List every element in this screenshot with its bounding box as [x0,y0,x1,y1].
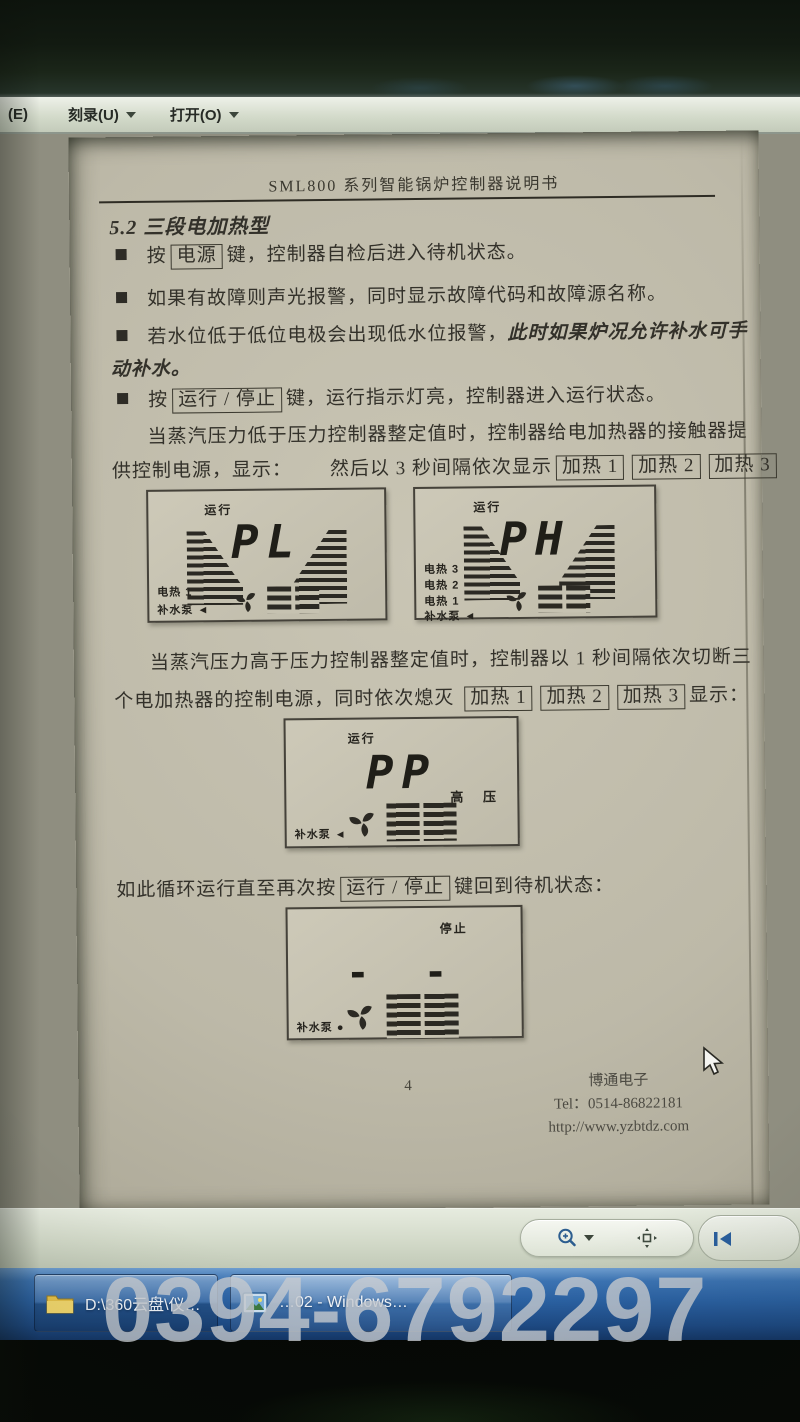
para1-line2: 供控制电源，显示：然后以 3 秒间隔依次显示加热 1加热 2加热 3 [112,449,781,485]
pump-indicator: 补水泵 ◄ [424,607,476,624]
taskbar-button-folder-label: D:\360云盘\仪… [85,1291,201,1315]
viewer-canvas: SML800 系列智能锅炉控制器说明书 5.2 三段电加热型 按电源键，控制器自… [0,134,800,1208]
water-level-gauge-icon [538,585,590,613]
zoom-toolbar [520,1219,694,1257]
pump-indicator: 补水泵 ◄ [295,826,347,843]
monitor-photo: (E) 刻录(U) 打开(O) SML800 系列智能锅炉控制器说明书 5.2 … [0,0,800,1422]
bullet-power: 按电源键，控制器自检后进入待机状态。 [115,237,526,270]
para1-line2a: 供控制电源，显示： [112,459,292,482]
water-level-gauge-icon [386,803,456,842]
heater2-indicator: 电热 2 [424,577,459,593]
lcd-run-label: 运行 [348,729,376,746]
monitor-bottom-bezel [0,1340,800,1422]
bullet-square-icon [116,292,127,303]
bullet-runstop: 按运行 / 停止键，运行指示灯亮，控制器进入运行状态。 [117,379,666,414]
fan-icon [504,588,530,612]
bullet-power-pre: 按 [147,246,167,267]
viewer-control-bar [0,1208,800,1268]
bullet-lowwater: 若水位低于低位电极会出现低水位报警，此时如果炉况允许补水可手 [116,316,747,350]
bullet-fault-text: 如果有故障则声光报警，同时显示故障代码和故障源名称。 [147,283,667,309]
bullet-square-icon [116,330,127,341]
folder-icon [45,1291,75,1315]
runstop-key: 运行 / 停止 [340,876,450,902]
high-pressure-indicator: 高 压 [450,786,504,806]
page-number: 4 [404,1078,412,1095]
menu-item-open-label: 打开(O) [170,104,222,125]
lcd-display-ph: 运行 PH 电热 3 电热 2 电热 1 补水泵 ◄ [413,485,657,621]
fan-icon [346,807,378,837]
fan-icon [344,1000,376,1030]
chevron-down-icon [229,112,239,118]
lcd-value-pl: PL [148,513,385,569]
fan-icon [233,589,259,613]
para1-line2b: 然后以 3 秒间隔依次显示 [330,457,552,480]
footer-contact: 博通电子 Tel：0514-86822181 http://www.yzbtdz… [508,1069,729,1140]
taskbar-button-photo-viewer[interactable]: …02 - Windows… [230,1274,512,1332]
chevron-down-icon [584,1235,594,1241]
bullet-fault: 如果有故障则声光报警，同时显示故障代码和故障源名称。 [116,278,667,311]
menu-item-email-label: (E) [8,106,28,123]
bullet-runstop-post: 键，运行指示灯亮，控制器进入运行状态。 [286,384,666,409]
taskbar-button-photo-viewer-label: …02 - Windows… [279,1294,408,1312]
para2-line1: 当蒸汽压力高于压力控制器整定值时，控制器以 1 秒间隔依次切断三 [150,642,752,675]
para2-line2b: 显示： [689,685,749,707]
para1-line1: 当蒸汽压力低于压力控制器整定值时，控制器给电加热器的接触器提 [147,416,747,449]
para3: 如此循环运行直至再次按运行 / 停止键回到待机状态： [116,870,614,904]
pump-indicator: 补水泵 ◄ [157,601,209,618]
photo-viewer-icon [241,1291,269,1315]
zoom-dropdown[interactable] [556,1227,594,1249]
actual-size-icon[interactable] [636,1227,658,1249]
heat2-key: 加热 2 [540,685,609,711]
navigation-group [698,1215,800,1261]
para2-line2a: 个电加热器的控制电源，同时依次熄灭 [114,688,454,713]
taskbar-button-folder[interactable]: D:\360云盘\仪… [34,1274,218,1332]
document-page: SML800 系列智能锅炉控制器说明书 5.2 三段电加热型 按电源键，控制器自… [68,130,769,1211]
mouse-cursor-icon [702,1046,728,1078]
bullet-lowwater-line2: 动补水。 [111,353,191,381]
lcd-display-stop: 停止 - - 补水泵 ● [285,905,523,1040]
zoom-magnifier-icon [556,1227,578,1249]
bullet-lowwater-text: 若水位低于低位电极会出现低水位报警， [147,323,507,348]
para2-line2: 个电加热器的控制电源，同时依次熄灭加热 1加热 2加热 3显示： [114,680,749,715]
heat1-key: 加热 1 [464,686,533,712]
heat3-key: 加热 3 [708,453,777,479]
menu-item-open[interactable]: 打开(O) [164,100,245,129]
lcd-stop-label: 停止 [440,920,468,937]
runstop-key: 运行 / 停止 [172,387,282,413]
lcd-value-stop: - - [288,949,521,995]
bullet-square-icon [116,249,127,260]
power-key: 电源 [171,244,223,269]
menu-item-burn-label: 刻录(U) [68,104,119,125]
bullet-runstop-pre: 按 [148,390,168,411]
water-level-gauge-icon [386,994,458,1039]
bullet-square-icon [117,393,128,404]
monitor-top-bezel [0,0,800,97]
heat1-key: 加热 1 [556,455,625,481]
windows-taskbar: D:\360云盘\仪… …02 - Windows… [0,1268,800,1340]
section-heading: 5.2 三段电加热型 [109,210,269,241]
heat2-key: 加热 2 [632,454,701,480]
viewer-menubar: (E) 刻录(U) 打开(O) [0,97,800,134]
menu-item-email-partial[interactable]: (E) [2,102,34,127]
pump-indicator: 补水泵 ● [297,1019,345,1035]
menu-item-burn[interactable]: 刻录(U) [62,100,142,129]
lcd-display-pl: 运行 PL 电热 1 补水泵 ◄ [146,487,387,623]
website-url: http://www.yzbtdz.com [509,1115,729,1140]
lcd-value-ph: PH [415,511,655,567]
previous-icon [711,1228,735,1250]
phone-number: Tel：0514-86822181 [508,1092,728,1117]
bullet-lowwater-italic: 此时如果炉况允许补水可手 [507,321,747,345]
bullet-power-post: 键，控制器自检后进入待机状态。 [227,242,527,266]
chevron-down-icon [126,112,136,118]
company-name: 博通电子 [508,1069,728,1094]
para3-pre: 如此循环运行直至再次按 [116,878,336,901]
water-level-gauge-icon [267,586,319,614]
previous-button[interactable] [711,1227,737,1251]
heater1-indicator: 电热 1 [157,583,192,599]
heater3-indicator: 电热 3 [424,561,459,577]
heater1-indicator: 电热 1 [424,593,459,609]
para3-post: 键回到待机状态： [454,875,614,898]
lcd-display-pp: 运行 PP 高 压 补水泵 ◄ [283,716,519,848]
heat3-key: 加热 3 [617,684,686,710]
document-title: SML800 系列智能锅炉控制器说明书 [69,167,759,198]
